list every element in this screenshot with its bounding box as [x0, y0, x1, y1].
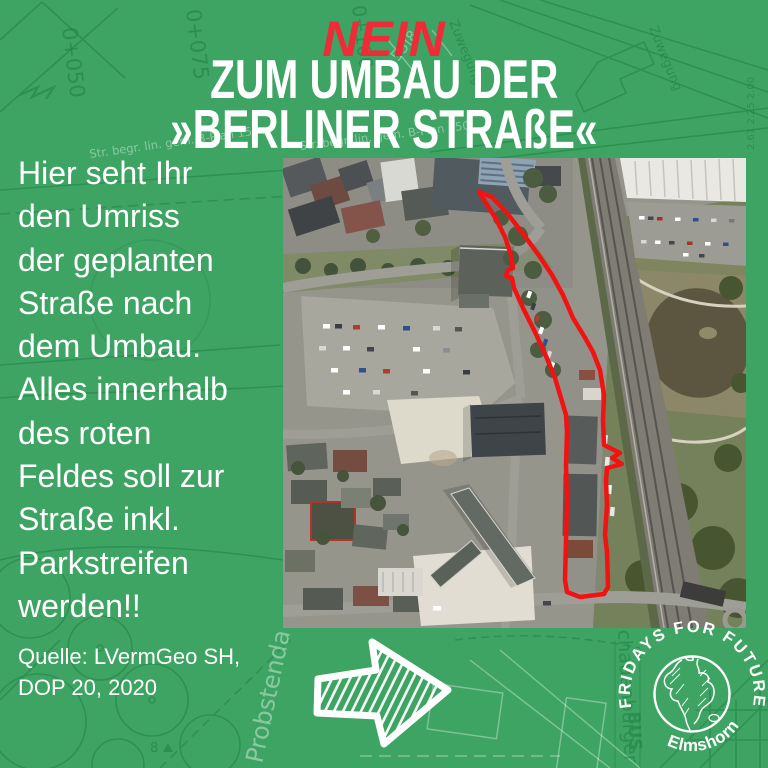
- body-line: Parkstreifen: [18, 542, 288, 585]
- headline: ZUM UMBAU DER »BERLINER STRAßE«: [0, 54, 768, 154]
- source-line: Quelle: LVermGeo SH,: [18, 641, 240, 672]
- source-line: DOP 20, 2020: [18, 672, 240, 703]
- body-line: den Umriss: [18, 195, 288, 238]
- headline-line1: ZUM UMBAU DER: [210, 54, 558, 104]
- body-line: des roten: [18, 412, 288, 455]
- poster-canvas: 0+050 0+075 0+100 Zuwegung Zuwegung chau…: [0, 0, 768, 768]
- body-line: Hier seht Ihr: [18, 152, 288, 195]
- headline-line2: »BERLINER STRAßE«: [170, 104, 597, 154]
- aerial-photo: [283, 158, 746, 628]
- body-line: Alles innerhalb: [18, 368, 288, 411]
- body-line: dem Umbau.: [18, 325, 288, 368]
- body-line: der geplanten: [18, 239, 288, 282]
- dark-building: [470, 403, 546, 458]
- body-line: Feldes soll zur: [18, 455, 288, 498]
- body-line: Straße nach: [18, 282, 288, 325]
- plan-triangle-symbol: [163, 743, 173, 752]
- plan-label: 8: [150, 741, 158, 756]
- industrial-building: [620, 158, 746, 202]
- body-line: werden!!: [18, 585, 288, 628]
- source-credit: Quelle: LVermGeo SH, DOP 20, 2020: [18, 641, 240, 703]
- body-text: Hier seht Ihr den Umriss der geplanten S…: [18, 152, 288, 628]
- plan-label: BUS: [623, 711, 645, 751]
- parking-lot: [301, 296, 515, 416]
- plan-label: Probstenda: [240, 627, 295, 765]
- body-line: Straße inkl.: [18, 498, 288, 541]
